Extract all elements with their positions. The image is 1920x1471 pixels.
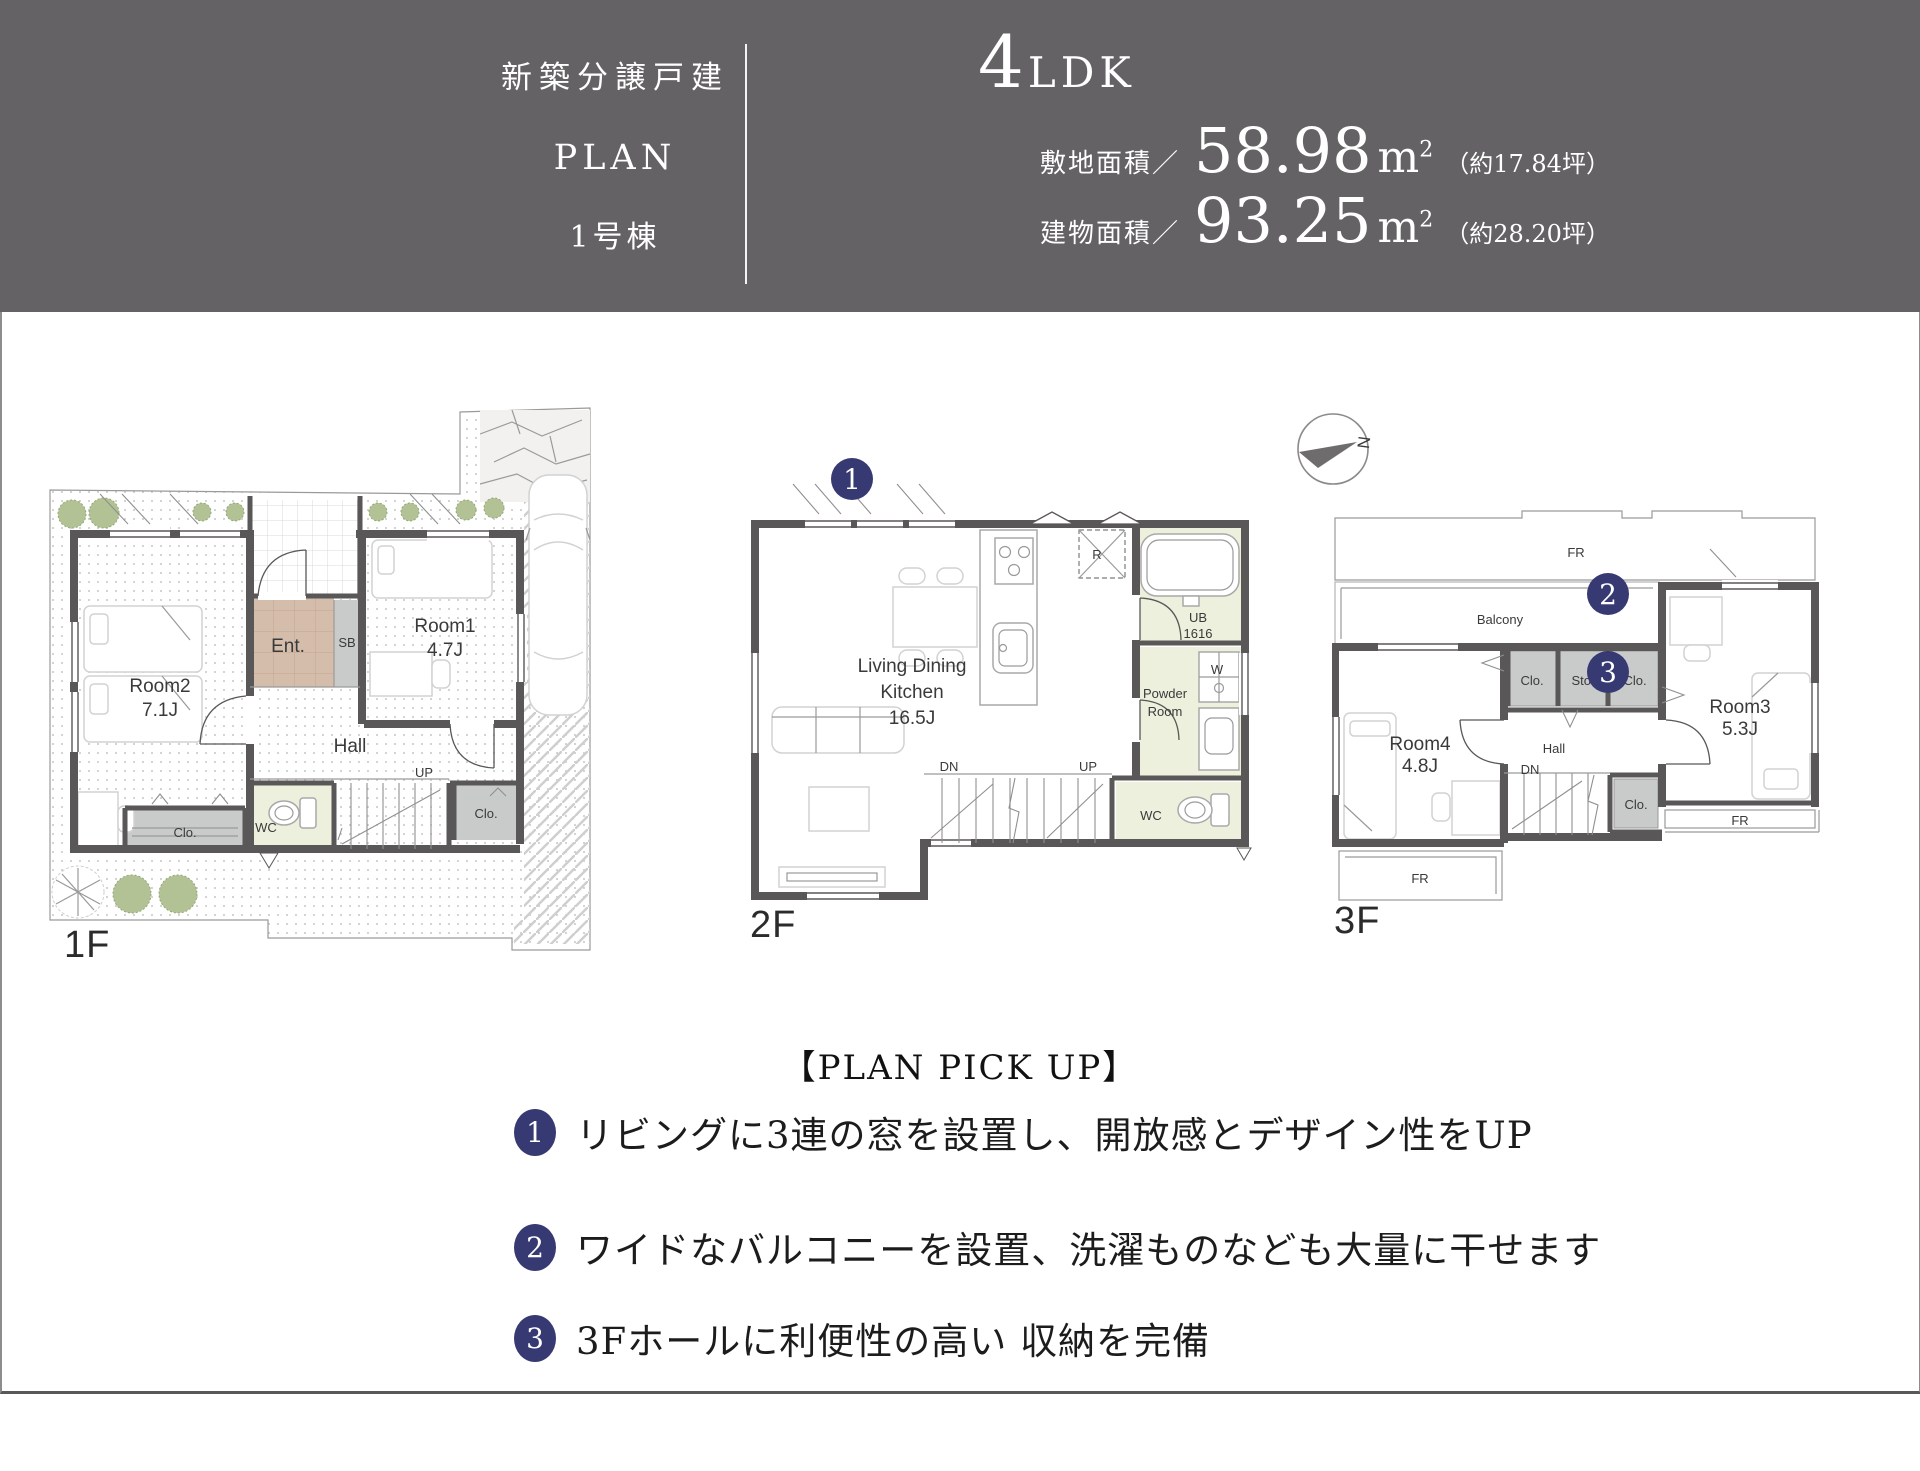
pickup-text-1: リビングに3連の窓を設置し、開放感とデザイン性をUP — [576, 1105, 1533, 1159]
f2-up-label: UP — [1079, 759, 1097, 774]
stairs-2f — [931, 778, 1103, 843]
flyer-page: 新築分譲戸建 PLAN 1号棟 4 LDK 敷地面積／ 58.98 m2 （約1… — [0, 0, 1920, 1471]
pickup-text-2: ワイドなバルコニーを設置、洗濯ものなども大量に干せます — [576, 1220, 1601, 1274]
f3-balcony-label: Balcony — [1477, 612, 1524, 627]
floorplan-3f-svg: FR Balcony Clo. Sto. Clo. Room3 5.3J Roo… — [1332, 505, 1822, 945]
pickup-item-1: 1 リビングに3連の窓を設置し、開放感とデザイン性をUP — [514, 1106, 1533, 1158]
f3-clo-a-label: Clo. — [1520, 673, 1543, 688]
pickup-badge-1: 1 — [514, 1109, 556, 1156]
stairs-3f — [1504, 773, 1610, 835]
site-area-label: 敷地面積／ — [1040, 143, 1180, 180]
f2-ldk-size: 16.5J — [889, 708, 935, 729]
f3-fr-bottom-label: FR — [1411, 871, 1428, 886]
f1-hall-label: Hall — [334, 736, 367, 757]
compass-north-letter: N — [1353, 435, 1372, 450]
f1-sb-label: SB — [338, 635, 355, 650]
site-area-row: 敷地面積／ 58.98 m2 （約17.84坪） — [1040, 120, 1610, 183]
pickup-badge-3: 3 — [514, 1315, 556, 1362]
f1-clo-right-label: Clo. — [474, 806, 497, 821]
kitchen-counter — [980, 530, 1037, 705]
f3-clo-c-label: Clo. — [1624, 797, 1647, 812]
f2-w-label: W — [1211, 662, 1224, 677]
f2-ldk-line2: Kitchen — [880, 682, 943, 703]
site-area-value: 58.98 — [1194, 120, 1372, 182]
header-band: 新築分譲戸建 PLAN 1号棟 4 LDK 敷地面積／ 58.98 m2 （約1… — [0, 0, 1920, 312]
pickup-item-2: 2 ワイドなバルコニーを設置、洗濯ものなども大量に干せます — [514, 1221, 1601, 1273]
f2-powder-line2: Room — [1148, 704, 1183, 719]
toilet-2f — [1178, 794, 1229, 826]
f3-room3-size: 5.3J — [1722, 719, 1758, 740]
f1-room1-size: 4.7J — [427, 640, 463, 661]
f2-ub-line1: UB — [1189, 610, 1207, 625]
f1-wc-label: WC — [255, 820, 277, 835]
ldk-text: LDK — [1028, 48, 1136, 97]
f3-room4-label: Room4 — [1389, 734, 1451, 755]
f3-hall-label: Hall — [1543, 741, 1566, 756]
pickup-heading: 【PLAN PICK UP】 — [0, 1040, 1920, 1089]
building-number: 1号棟 — [470, 212, 760, 256]
site-area-tsubo: （約17.84坪） — [1445, 144, 1610, 179]
f3-room3-label: Room3 — [1709, 697, 1770, 718]
floor-label-1f: 1F — [64, 924, 110, 967]
badge-3-number: 3 — [1599, 656, 1617, 689]
fridge-space — [1079, 530, 1125, 578]
floorplan-2f-svg: Living Dining Kitchen 16.5J R UB 1616 Po… — [747, 440, 1252, 955]
property-type: 新築分譲戸建 — [470, 52, 760, 97]
f1-ent-label: Ent. — [271, 636, 305, 657]
f2-powder-line1: Powder — [1143, 686, 1188, 701]
building-area-unit: m2 — [1378, 202, 1434, 253]
car-topview — [526, 475, 590, 715]
f3-fr-right-label: FR — [1731, 813, 1748, 828]
f2-ldk-line1: Living Dining — [858, 656, 967, 677]
pickup-text-3: 3Fホールに利便性の高い 収納を完備 — [576, 1311, 1210, 1365]
f1-clo-left-label: Clo. — [173, 825, 196, 840]
f3-room4-size: 4.8J — [1402, 756, 1438, 777]
f2-dn-label: DN — [940, 759, 959, 774]
f3-dn-label: DN — [1521, 762, 1540, 777]
pickup-item-3: 3 3Fホールに利便性の高い 収納を完備 — [514, 1312, 1210, 1364]
f2-r-label: R — [1092, 547, 1101, 562]
building-area-label: 建物面積／ — [1040, 213, 1180, 250]
bathtub — [1141, 534, 1239, 606]
building-area-row: 建物面積／ 93.25 m2 （約28.20坪） — [1040, 190, 1610, 253]
f1-room2-label: Room2 — [129, 676, 190, 697]
f1-room1-label: Room1 — [414, 616, 475, 637]
f2-ub-line2: 1616 — [1184, 626, 1213, 641]
site-area-unit: m2 — [1378, 132, 1434, 183]
floorplan-section: Room2 7.1J Room1 4.7J Ent. SB Hall UP WC… — [0, 312, 1920, 1078]
plan-word: PLAN — [470, 138, 760, 178]
badge-1-number: 1 — [843, 463, 861, 496]
building-area-value: 93.25 — [1194, 190, 1372, 252]
floorplan-1f-svg: Room2 7.1J Room1 4.7J Ent. SB Hall UP WC… — [42, 400, 602, 970]
badge-2-number: 2 — [1599, 578, 1617, 611]
pickup-badge-2: 2 — [514, 1224, 556, 1271]
floor-label-2f: 2F — [750, 904, 796, 947]
pickup-section: 1 リビングに3連の窓を設置し、開放感とデザイン性をUP 2 ワイドなバルコニー… — [0, 1076, 1920, 1394]
layout-type: 4 LDK — [978, 26, 1136, 98]
header-divider — [745, 44, 747, 284]
f1-room2-size: 7.1J — [142, 700, 178, 721]
f3-fr-top-label: FR — [1567, 545, 1584, 560]
ldk-number: 4 — [978, 26, 1024, 98]
f1-up-label: UP — [415, 765, 433, 780]
building-area-tsubo: （約28.20坪） — [1445, 214, 1610, 249]
floor-label-3f: 3F — [1334, 900, 1380, 943]
compass-icon: N — [1294, 410, 1372, 488]
f2-wc-label: WC — [1140, 808, 1162, 823]
